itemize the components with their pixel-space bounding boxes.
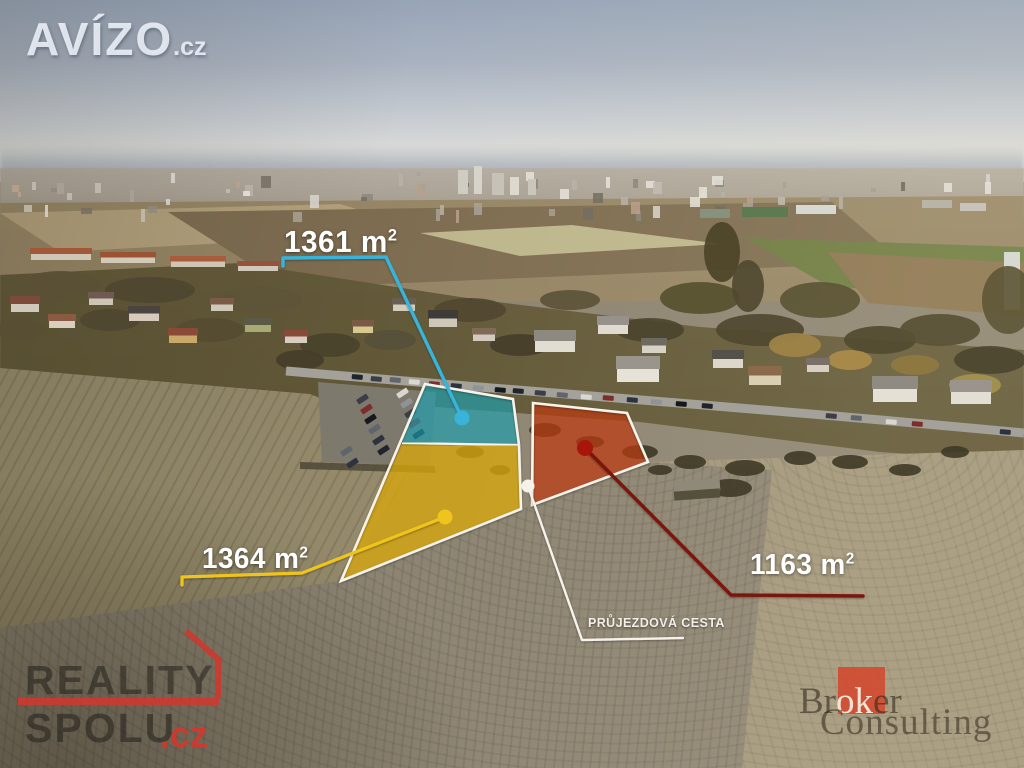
area-unit: m: [274, 543, 299, 575]
area-value: 1361: [284, 224, 352, 259]
road-label: PRŮJEZDOVÁ CESTA: [588, 616, 725, 630]
area-value: 1364: [202, 543, 266, 575]
area-unit: m: [361, 224, 388, 259]
plot-overlays-group: [341, 384, 648, 581]
area-unit: m: [821, 549, 846, 581]
plot-overlay-yellow: [341, 443, 521, 581]
marker-dot-yellow: [438, 510, 453, 525]
area-sup: 2: [299, 544, 308, 561]
aerial-photo: 1361 m2 1364 m2 1163 m2 PRŮJEZDOVÁ CESTA…: [0, 0, 1024, 768]
plot-area-label-red: 1163 m2: [750, 549, 855, 582]
plot-area-label-teal: 1361 m2: [284, 224, 397, 260]
avizo-logo-text: AVÍZO: [26, 13, 173, 65]
area-sup: 2: [388, 226, 398, 245]
plot-area-label-yellow: 1364 m2: [202, 543, 308, 576]
plot-annotations: [0, 0, 1024, 768]
marker-dot-red: [577, 440, 593, 456]
avizo-logo-tld: .cz: [173, 33, 206, 61]
marker-dot-teal: [455, 411, 470, 426]
marker-dot-road: [522, 480, 535, 493]
leader-lines-group: [182, 257, 863, 640]
area-value: 1163: [750, 549, 812, 581]
area-sup: 2: [846, 550, 855, 567]
avizo-logo: AVÍZO.cz: [26, 12, 207, 66]
